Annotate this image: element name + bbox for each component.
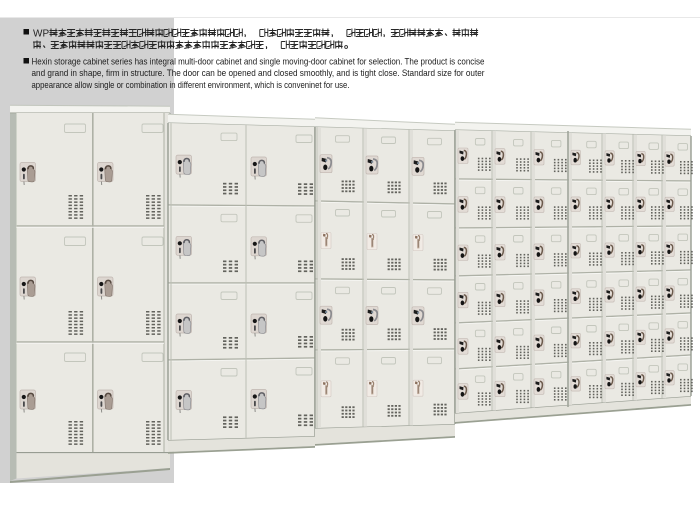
svg-text:and grand in shape, firm in st: and grand in shape, firm in structure. T… — [32, 68, 485, 78]
svg-text:appearance allow single or com: appearance allow single or combination i… — [32, 80, 350, 90]
svg-text:WP: WP — [33, 29, 49, 40]
svg-text:Hexin storage cabinet series h: Hexin storage cabinet series has integra… — [32, 57, 485, 67]
